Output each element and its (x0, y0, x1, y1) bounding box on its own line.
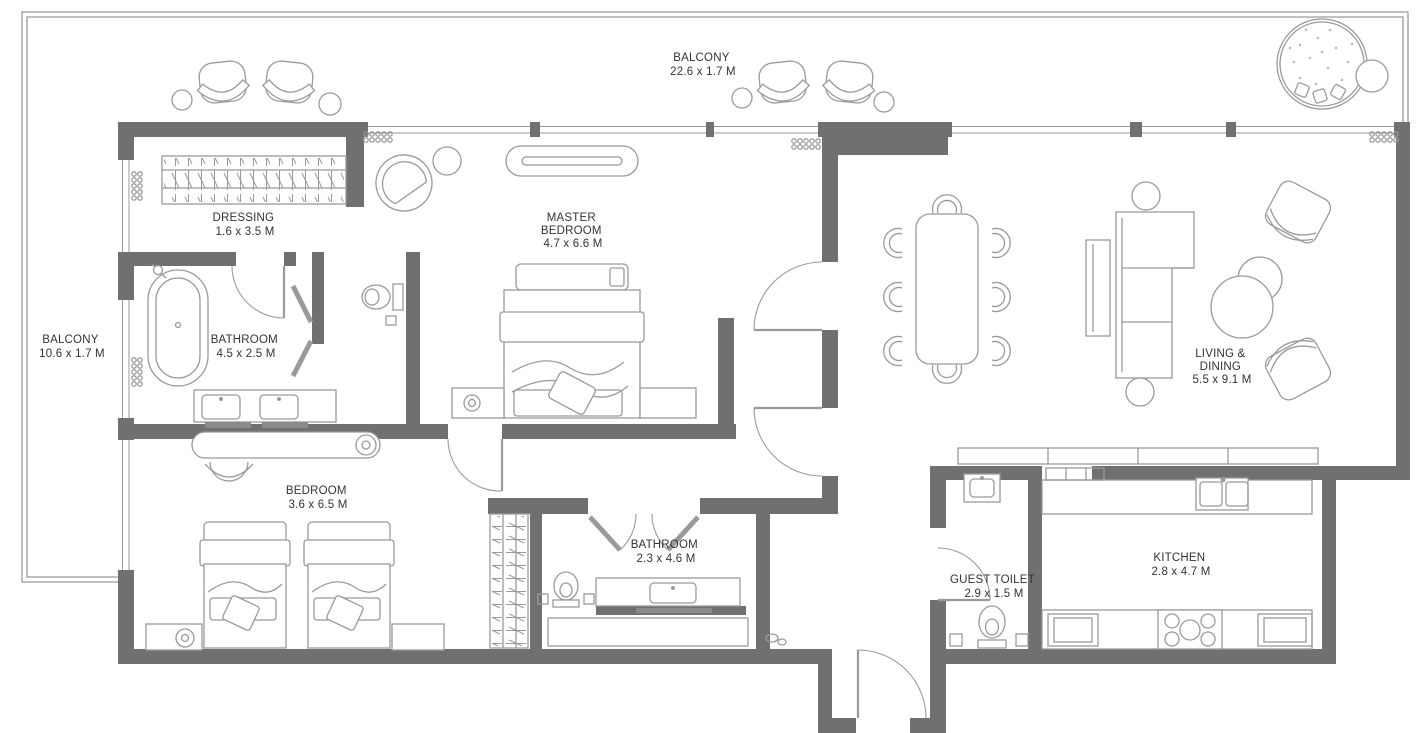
balcony-armchair (821, 59, 877, 104)
kitchen-sink (1196, 478, 1248, 511)
bench-left (146, 624, 202, 650)
dining-chair (933, 195, 962, 213)
l-shaped-sofa (1116, 182, 1194, 406)
twin-bed-2 (304, 522, 394, 648)
balcony-side-table (319, 93, 341, 115)
wardrobe-dressing (162, 156, 346, 204)
sideboard (958, 448, 1318, 464)
guest-basin (964, 474, 1000, 502)
balcony-armchair (195, 59, 251, 104)
label-balcony-left: BALCONY 10.6 x 1.7 M (39, 334, 105, 360)
balcony-armchair (261, 59, 317, 104)
door-master-to-hall-lower (754, 408, 822, 476)
label-dressing: DRESSING 1.6 x 3.5 M (212, 212, 277, 238)
guest-wc (950, 606, 1028, 648)
label-balcony-top: BALCONY 22.6 x 1.7 M (670, 52, 736, 78)
lounge-chair (1260, 332, 1334, 404)
dining-chair (884, 229, 902, 258)
dining-chair (992, 229, 1010, 258)
label-living-dining: LIVING & DINING 5.5 x 9.1 M (1192, 348, 1251, 386)
dining-chair (884, 283, 902, 312)
dining-table (916, 214, 978, 364)
door-dressing-to-bathroom (232, 266, 284, 318)
cooktop (1158, 610, 1222, 649)
label-bathroom: BATHROOM 2.3 x 4.6 M (631, 539, 702, 565)
lounge-chair (1260, 178, 1334, 250)
door-master-to-hall-upper (754, 262, 822, 330)
label-guest-toilet: GUEST TOILET 2.9 x 1.5 M (950, 574, 1038, 600)
tv-console-master (506, 146, 638, 176)
nightstand-master-left (452, 388, 504, 418)
door-bedroom (448, 439, 502, 491)
dining-chair (933, 365, 962, 383)
bench-right (392, 624, 444, 650)
label-kitchen: KITCHEN 2.8 x 4.7 M (1151, 552, 1210, 578)
desk (192, 432, 380, 481)
dining-chair (992, 283, 1010, 312)
label-bedroom: BEDROOM 3.6 x 6.5 M (286, 485, 350, 511)
bench-bathroom2 (548, 618, 748, 646)
coffee-tables (1211, 257, 1282, 338)
wardrobe-bedroom (490, 514, 528, 648)
dining-chair (884, 337, 902, 366)
planter (1277, 19, 1388, 109)
plant-master (433, 147, 461, 175)
balcony-side-table (172, 90, 192, 110)
label-master-bathroom: BATHROOM 4.5 x 2.5 M (211, 334, 282, 360)
armchair-master (365, 144, 443, 222)
tv-console-living (1086, 240, 1110, 336)
balcony-armchair (755, 59, 811, 104)
dining-chair (992, 337, 1010, 366)
nightstand-master-right (640, 388, 696, 418)
toilet-bathroom2 (538, 572, 594, 607)
twin-bed-1 (200, 522, 290, 648)
floor-plan: BALCONY 22.6 x 1.7 M BALCONY 10.6 x 1.7 … (0, 0, 1422, 733)
balcony-side-table (874, 92, 894, 112)
toilet-master (362, 284, 403, 325)
balcony-side-table (732, 88, 752, 108)
bathtub (148, 264, 208, 386)
curtain-coil (792, 139, 820, 149)
floor-plan-canvas: BALCONY 22.6 x 1.7 M BALCONY 10.6 x 1.7 … (0, 0, 1422, 733)
shower-doors-master (293, 286, 311, 376)
master-bed (500, 264, 644, 418)
label-master-bedroom: MASTER BEDROOM 4.7 x 6.6 M (541, 212, 605, 250)
double-vanity (194, 390, 336, 428)
